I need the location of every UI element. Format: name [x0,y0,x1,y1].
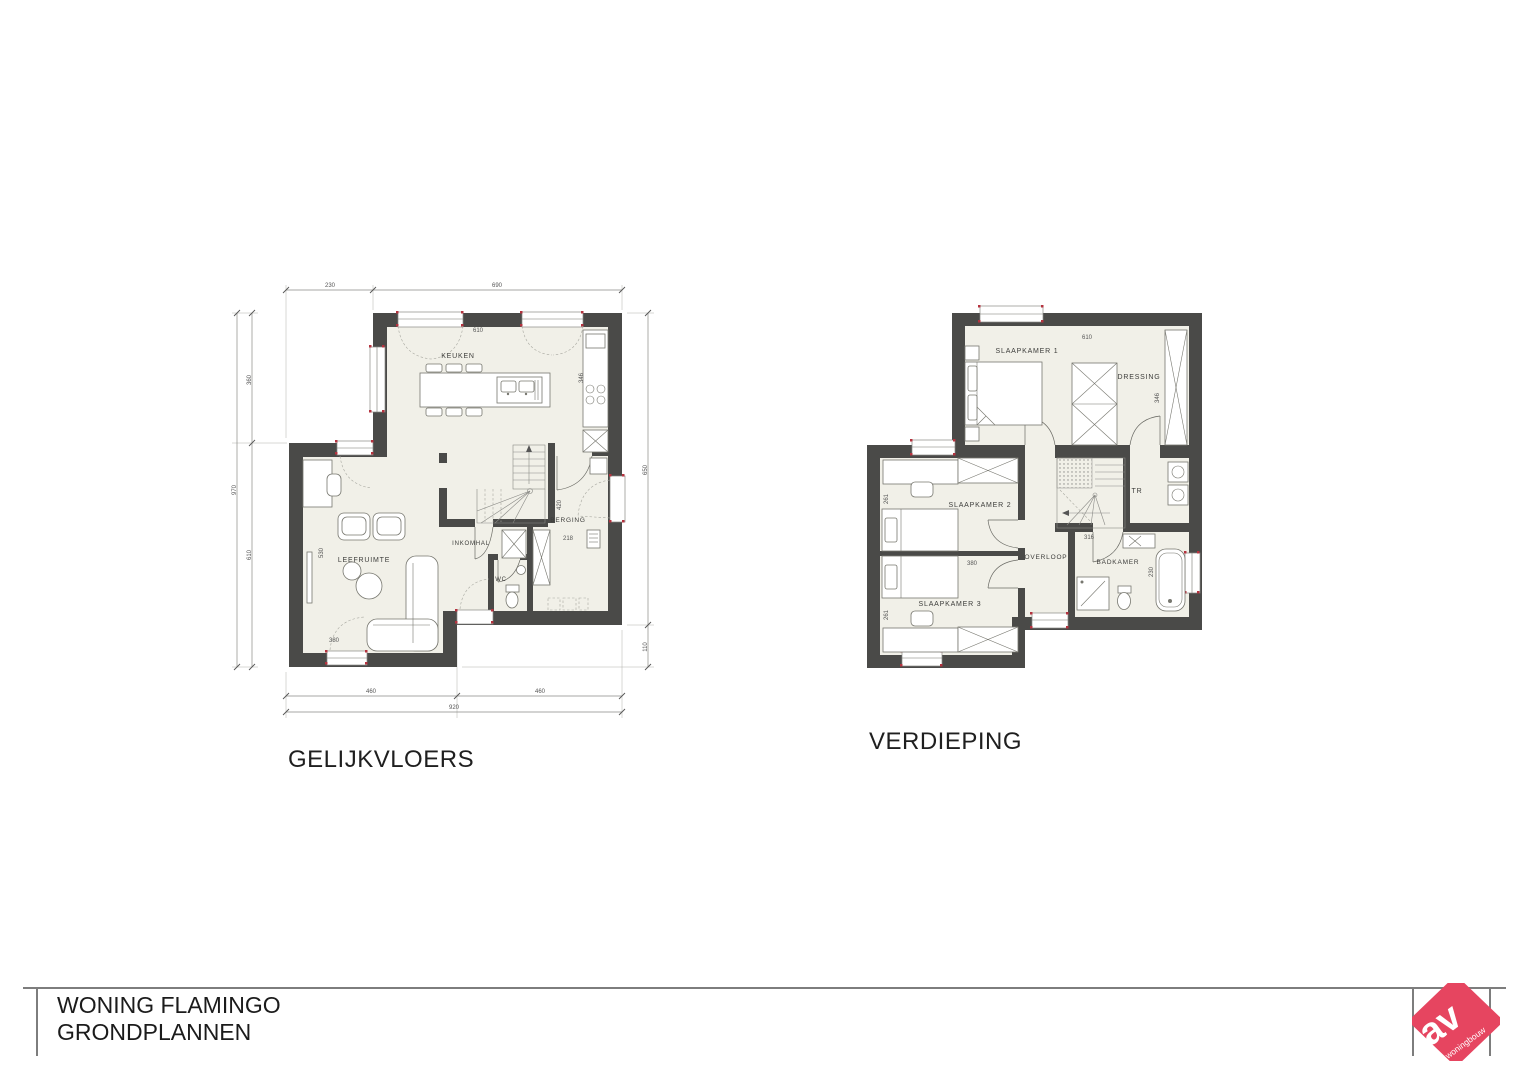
vanity [1123,534,1155,548]
toilet [506,592,518,608]
room-label-inkomhal: INKOMHAL [452,541,490,547]
side-table [343,562,361,580]
dim-110: 110 [643,642,649,652]
room-label-wc: WC [495,577,507,583]
room-label-overloop: OVERLOOP [1025,554,1068,561]
window-keuken-right-top [520,311,584,327]
dim-346: 346 [579,372,585,383]
room-label-berging: BERGING [550,517,586,524]
ground-plan-title: GELIJKVLOERS [288,746,474,774]
dim-920: 920 [449,705,460,711]
window-sk1-top [978,305,1044,323]
project-name: WONING FLAMINGO [57,992,281,1019]
side-table [356,573,382,599]
desk [883,628,958,652]
upper-plan-title: VERDIEPING [869,728,1022,756]
nightstand [965,346,979,360]
dim-650: 650 [643,464,649,475]
dim-460b: 460 [535,689,546,695]
ground-floor-plan: 230 690 970 360 610 650 110 460 460 920 [230,268,662,728]
toilet-tank [506,585,519,592]
stair-void-hatch [1057,458,1092,488]
washer [1168,462,1188,482]
upper-floor-plan: SLAAPKAMER 1 DRESSING SLAAPKAMER 2 SLAAP… [855,295,1225,695]
front-door [455,609,494,624]
dim-360: 360 [247,374,253,385]
nightstand [965,427,979,441]
dim-230: 230 [325,283,336,289]
room-label-slaapkamer1: SLAAPKAMER 1 [996,348,1059,355]
dim-380-upper: 380 [967,561,978,567]
radiator [307,552,312,603]
dim-970: 970 [232,484,238,495]
dim-460a: 460 [366,689,377,695]
titleblock-divider [36,988,38,1056]
dim-380: 380 [329,638,340,644]
desk-chair [911,482,933,497]
dim-420: 420 [557,499,563,510]
hand-basin [517,566,526,575]
dim-230-upper: 230 [1149,566,1155,577]
room-label-tr: TR [1132,488,1143,495]
kitchen-counter [583,330,608,474]
dim-346-upper: 346 [1155,392,1161,403]
dim-218: 218 [563,536,574,542]
titleblock-text: WONING FLAMINGO GRONDPLANNEN [57,992,281,1046]
window-keuken-left-top [396,311,464,327]
dim-keuken-610: 610 [473,328,484,334]
window-keuken-west [369,345,385,413]
window-sk2-top [910,439,956,456]
dim-316: 316 [1084,535,1095,541]
desk [883,460,958,484]
room-label-dressing: DRESSING [1118,374,1161,381]
berging-exterior-door [609,474,625,523]
washer [587,530,600,548]
drawing-page: 230 690 970 360 610 650 110 460 460 920 [0,0,1528,1080]
dim-610-left: 610 [247,549,253,560]
drawing-name: GRONDPLANNEN [57,1019,281,1046]
room-label-badkamer: BADKAMER [1097,559,1140,566]
window-overloop-bottom [1030,612,1069,629]
toilet-tank [1118,586,1131,593]
room-label-keuken: KEUKEN [441,353,475,360]
titleblock-top-line [23,987,1506,989]
dim-261-sk3: 261 [884,609,890,620]
dim-530: 530 [319,547,325,558]
company-logo: av woningbouw [1412,983,1500,1061]
desk-chair [911,611,933,626]
desk-chair [327,474,341,496]
window-living-bottom [325,650,368,665]
window-badkamer-right [1184,551,1200,594]
dim-610-upper: 610 [1082,335,1093,341]
room-label-leefruimte: LEEFRUIMTE [338,557,390,564]
room-label-slaapkamer2: SLAAPKAMER 2 [949,502,1012,509]
dim-690: 690 [492,283,503,289]
sofa [367,619,438,651]
dryer [1168,485,1188,505]
toilet [1118,593,1131,610]
window-living-top [335,440,374,455]
room-label-slaapkamer3: SLAAPKAMER 3 [919,601,982,608]
window-sk3-bottom [900,650,943,667]
dim-261-sk2: 261 [884,493,890,504]
